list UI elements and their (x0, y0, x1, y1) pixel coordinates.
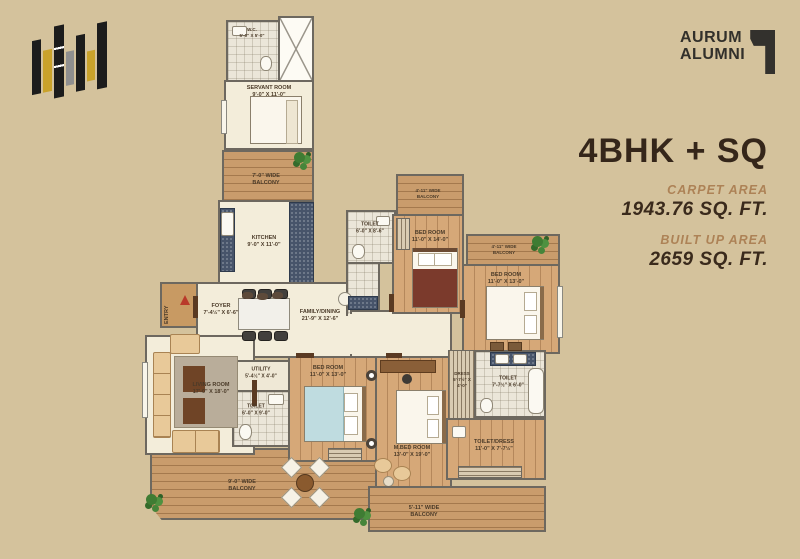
window (142, 362, 148, 418)
wash-basin (452, 426, 466, 438)
room-label-kitchen: KITCHEN9'-0" X 11'-0" (247, 235, 280, 249)
builtup-area-value: 2659 SQ. FT. (649, 249, 768, 271)
lift-shaft (278, 16, 314, 82)
room-dining-east (350, 310, 452, 358)
bathtub (528, 368, 544, 414)
door-bedroom-right (460, 300, 465, 318)
lounge-chair (374, 458, 392, 473)
logo-tower-bar (54, 24, 64, 98)
door-master-bedroom (386, 353, 402, 358)
room-label-bedroom-right: BED ROOM11'-0" X 13'-0" (488, 272, 524, 286)
wash-basin (513, 354, 527, 364)
bench-chair (508, 342, 522, 351)
door-entry (193, 296, 198, 318)
wc-pot (260, 56, 272, 71)
vanity-counter (348, 296, 378, 310)
door-living (252, 380, 257, 406)
wc-pot (239, 424, 252, 440)
footwear (272, 292, 283, 299)
logo-tower-bar (43, 49, 52, 93)
dining-chair (274, 331, 288, 341)
room-label-toilet-dress: TOILET/DRESS11'-0" X 7'-7½" (474, 439, 514, 453)
wc-pot (352, 244, 365, 259)
sofa (153, 352, 171, 438)
desk (380, 360, 436, 373)
brand-name-line1: AURUM (680, 30, 745, 47)
window (221, 100, 227, 134)
room-label-wc: W.C.5'-0" X 5'-0" (240, 27, 265, 39)
door-bedroom-center (296, 353, 314, 358)
plant-icon (294, 152, 305, 163)
patio-table (296, 474, 314, 492)
room-label-toilet-common: TOILET6'-0" X 9'-0" (242, 404, 270, 417)
kitchen-counter-right (289, 202, 314, 288)
window (557, 286, 563, 338)
wardrobe-bedroom-top (396, 218, 410, 250)
room-label-foyer: FOYER7'-4½" X 6'-6" (203, 303, 238, 317)
room-label-toilet-master: TOILET7'-7½" X 6'-0" (492, 376, 524, 389)
logo-tower-bar (97, 21, 107, 89)
logo-tower-bar (87, 50, 95, 82)
wash-basin (268, 394, 284, 405)
room-label-utility: UTILITY5'-4½" X 4'-0" (245, 367, 277, 380)
carpet-area-value: 1943.76 SQ. FT. (621, 199, 768, 221)
entry-arrow-icon (180, 295, 190, 305)
nightstand-lamp (366, 370, 377, 381)
plant-icon (146, 494, 157, 505)
room-label-balcony-bottom: 9'-0" WIDE BALCONY (218, 479, 266, 493)
room-label-servant: SERVANT ROOM9'-0" X 11'-0" (247, 85, 291, 99)
room-label-master-bedroom: M.BED ROOM13'-0" X 19'-0" (394, 445, 431, 459)
nightstand-lamp (366, 438, 377, 449)
footwear (242, 292, 253, 299)
room-label-toilet-top: TOILET6'-0" X 8'-6" (356, 222, 384, 235)
bed-master (396, 390, 446, 444)
shaft-cross-icon (280, 18, 312, 80)
logo-tower-bar (66, 50, 74, 86)
room-balcony-bottom-right (368, 486, 546, 532)
footwear (257, 293, 268, 300)
logo-tower-bar (32, 39, 41, 95)
room-label-balcony-bedroom-right: 4'-11" WIDE BALCONY (482, 244, 526, 256)
plant-icon (354, 508, 365, 519)
kitchen-sink (221, 212, 234, 236)
floor-plan-poster: AURUM ALUMNI 4BHK + SQ CARPET AREA 1943.… (0, 0, 800, 559)
brand-name-line2: ALUMNI (680, 47, 745, 64)
unit-info-panel: 4BHK + SQ CARPET AREA 1943.76 SQ. FT. BU… (556, 132, 768, 271)
bed-servant (250, 96, 302, 144)
dining-chair (258, 331, 272, 341)
wc-pot (480, 398, 493, 413)
room-label-dress-master: DRESS5'-7½" X 4'-0" (449, 371, 475, 389)
desk-chair (402, 374, 412, 384)
bed-top-bedroom (412, 248, 458, 308)
builtup-area-label: BUILT UP AREA (660, 233, 768, 247)
room-label-balcony-top: 7'-0" WIDE BALCONY (245, 173, 287, 187)
wash-basin (495, 354, 509, 364)
sofa (172, 430, 220, 453)
room-label-balcony-bottom-right: 5'-11" WIDE BALCONY (401, 505, 447, 519)
armchair (170, 334, 200, 354)
room-label-bedroom-center: BED ROOM11'-0" X 13'-0" (310, 365, 346, 379)
plant-icon (532, 236, 543, 247)
bed-center-bedroom (304, 386, 366, 442)
room-label-balcony-bedroom-top: 4'-11" WIDE BALCONY (408, 188, 448, 200)
bed-right-bedroom (486, 286, 544, 340)
door-bedroom-top (389, 294, 394, 312)
corner-bracket-icon (750, 30, 775, 74)
lounge-chair (393, 466, 411, 481)
brand-lockup: AURUM ALUMNI (680, 30, 775, 74)
logo-tower-bar (76, 34, 85, 92)
room-label-living: LIVING ROOM17'-0" X 18'-0" (193, 382, 230, 396)
brand-logo-mark (32, 5, 118, 119)
dining-table (238, 298, 290, 330)
wardrobe-bedroom-center (328, 448, 362, 461)
unit-type-title: 4BHK + SQ (579, 132, 768, 171)
dining-chair (242, 331, 256, 341)
wardrobe-toilet-dress (458, 466, 522, 478)
carpet-area-label: CARPET AREA (667, 183, 768, 197)
entry-label: ENTRY (164, 288, 170, 324)
bench-chair (490, 342, 504, 351)
room-label-bedroom-top: BED ROOM11'-0" X 14'-0" (412, 230, 448, 244)
room-label-family-dining: FAMILY/DINING21'-9" X 12'-6" (300, 309, 340, 323)
open-plan-join (348, 314, 356, 354)
